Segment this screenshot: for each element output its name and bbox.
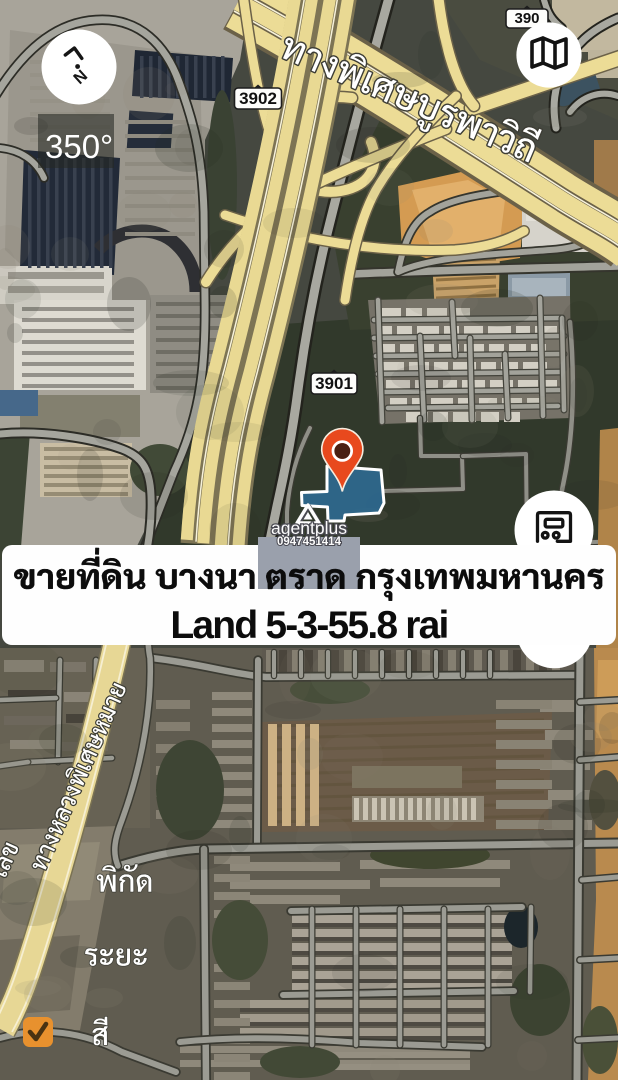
svg-text:350°: 350° [45,128,113,165]
svg-text:0947451414: 0947451414 [277,536,342,548]
svg-text:agentplus: agentplus [271,518,347,538]
svg-text:3901: 3901 [315,374,353,393]
svg-text:Land 5-3-55.8 rai: Land 5-3-55.8 rai [170,604,447,647]
svg-text:390: 390 [514,10,539,27]
svg-text:3902: 3902 [239,89,277,108]
